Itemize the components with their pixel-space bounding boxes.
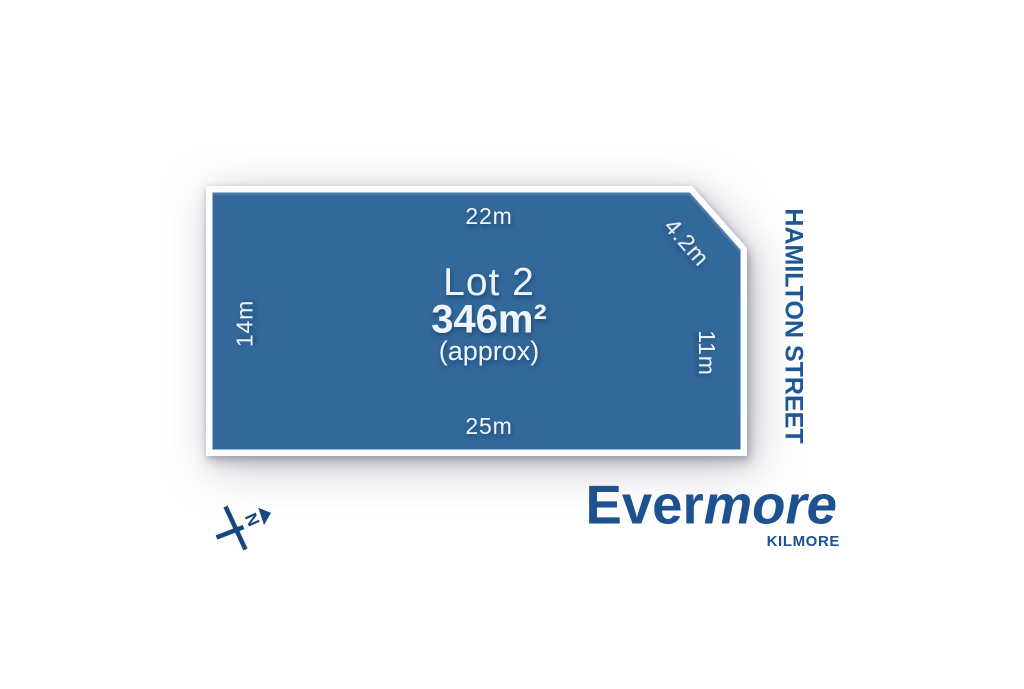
svg-text:Evermore: Evermore bbox=[586, 475, 837, 536]
svg-text:22m: 22m bbox=[465, 203, 512, 229]
svg-text:11m: 11m bbox=[694, 330, 720, 375]
svg-text:14m: 14m bbox=[232, 300, 258, 347]
svg-text:KILMORE: KILMORE bbox=[767, 533, 840, 550]
svg-text:HAMILTON STREET: HAMILTON STREET bbox=[780, 208, 808, 443]
svg-text:25m: 25m bbox=[465, 413, 512, 439]
svg-text:(approx): (approx) bbox=[439, 336, 540, 366]
svg-text:346m²: 346m² bbox=[431, 298, 547, 342]
